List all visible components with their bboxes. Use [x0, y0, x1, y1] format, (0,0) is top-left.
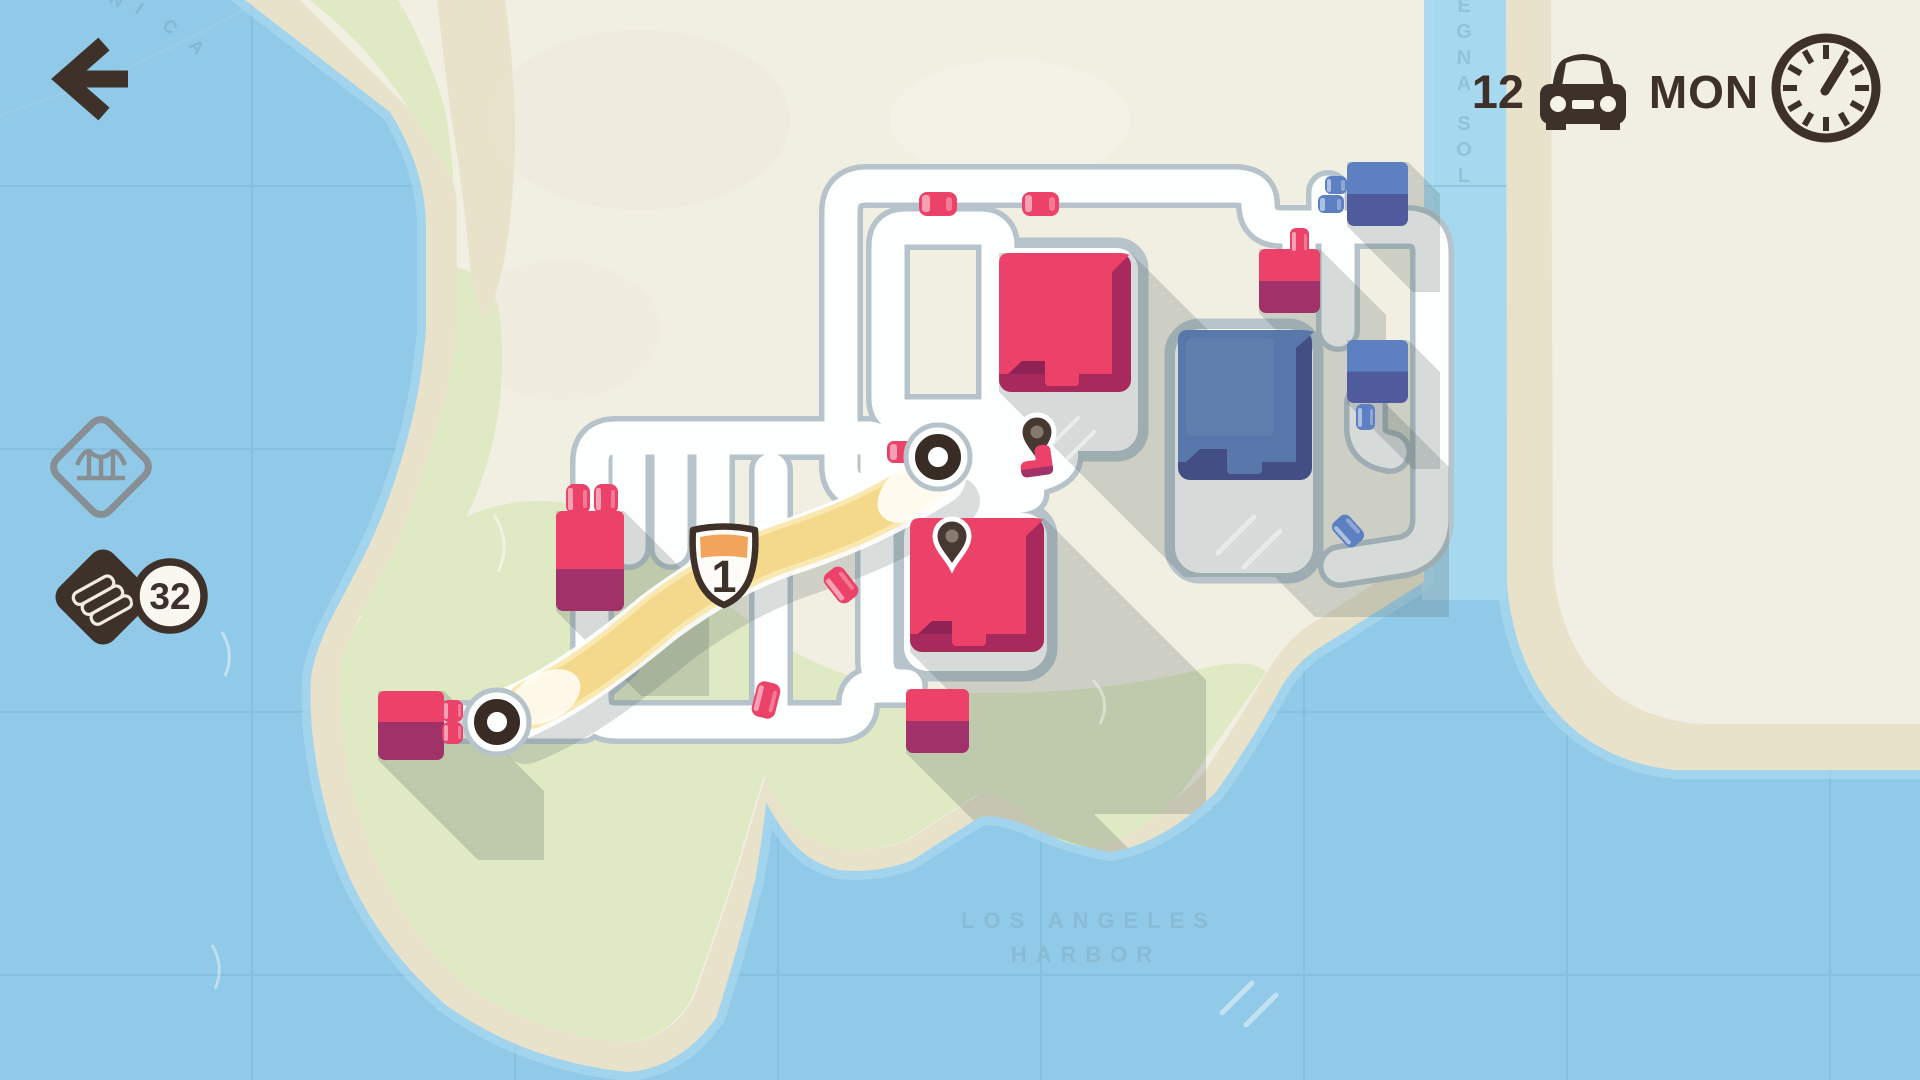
svg-text:LOS ANGELES: LOS ANGELES	[961, 908, 1217, 933]
svg-text:A: A	[1457, 73, 1471, 95]
svg-text:MON: MON	[1649, 66, 1759, 118]
svg-text:S: S	[1457, 113, 1470, 135]
svg-text:G: G	[1456, 21, 1472, 43]
svg-text:O: O	[1456, 139, 1472, 161]
svg-text:12: 12	[1472, 65, 1524, 118]
svg-text:N: N	[1457, 47, 1471, 69]
svg-text:L: L	[1458, 165, 1470, 187]
svg-text:1: 1	[711, 551, 736, 602]
svg-text:32: 32	[149, 576, 190, 617]
svg-text:HARBOR: HARBOR	[1011, 942, 1162, 967]
svg-text:E: E	[1457, 0, 1470, 17]
